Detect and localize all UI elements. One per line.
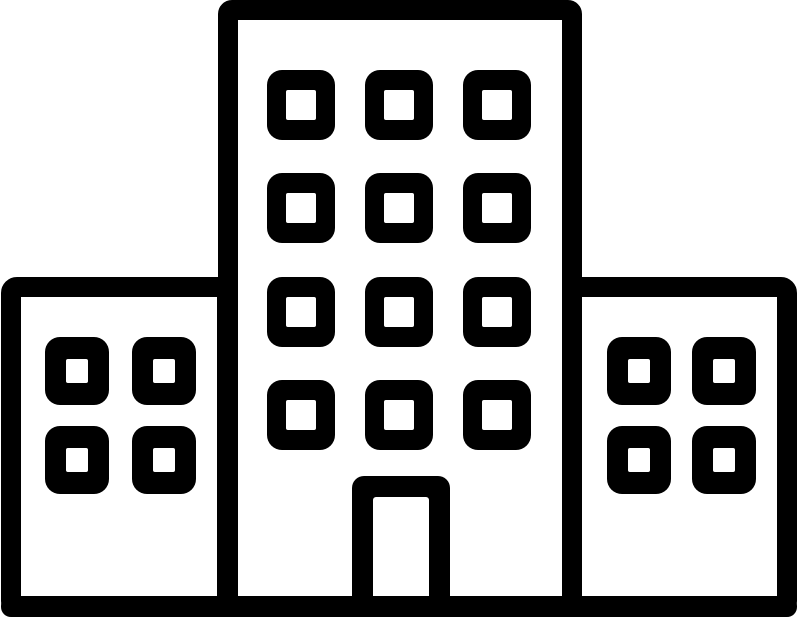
center-tower-window-pane <box>482 400 512 430</box>
center-tower-window-pane <box>286 400 316 430</box>
center-tower-window-pane <box>286 193 316 223</box>
left-wing-window-pane <box>153 359 175 383</box>
center-tower-window-pane <box>482 90 512 120</box>
building-icon-image <box>0 0 800 618</box>
right-wing-window-pane <box>713 359 735 383</box>
right-wing-window-pane <box>713 448 735 472</box>
center-tower-window-pane <box>482 193 512 223</box>
right-wing-window-pane <box>628 359 650 383</box>
center-tower-window-pane <box>384 193 414 223</box>
center-tower-window-pane <box>384 297 414 327</box>
center-tower-window-pane <box>384 90 414 120</box>
center-tower-window-pane <box>286 297 316 327</box>
left-wing-window-pane <box>153 448 175 472</box>
center-tower-window-pane <box>384 400 414 430</box>
center-tower-window-pane <box>286 90 316 120</box>
right-wing-window-pane <box>628 448 650 472</box>
building-icon <box>0 0 800 618</box>
ground-baseline <box>1 596 797 617</box>
left-wing-window-pane <box>66 448 88 472</box>
center-tower-window-pane <box>482 297 512 327</box>
left-wing-window-pane <box>66 359 88 383</box>
